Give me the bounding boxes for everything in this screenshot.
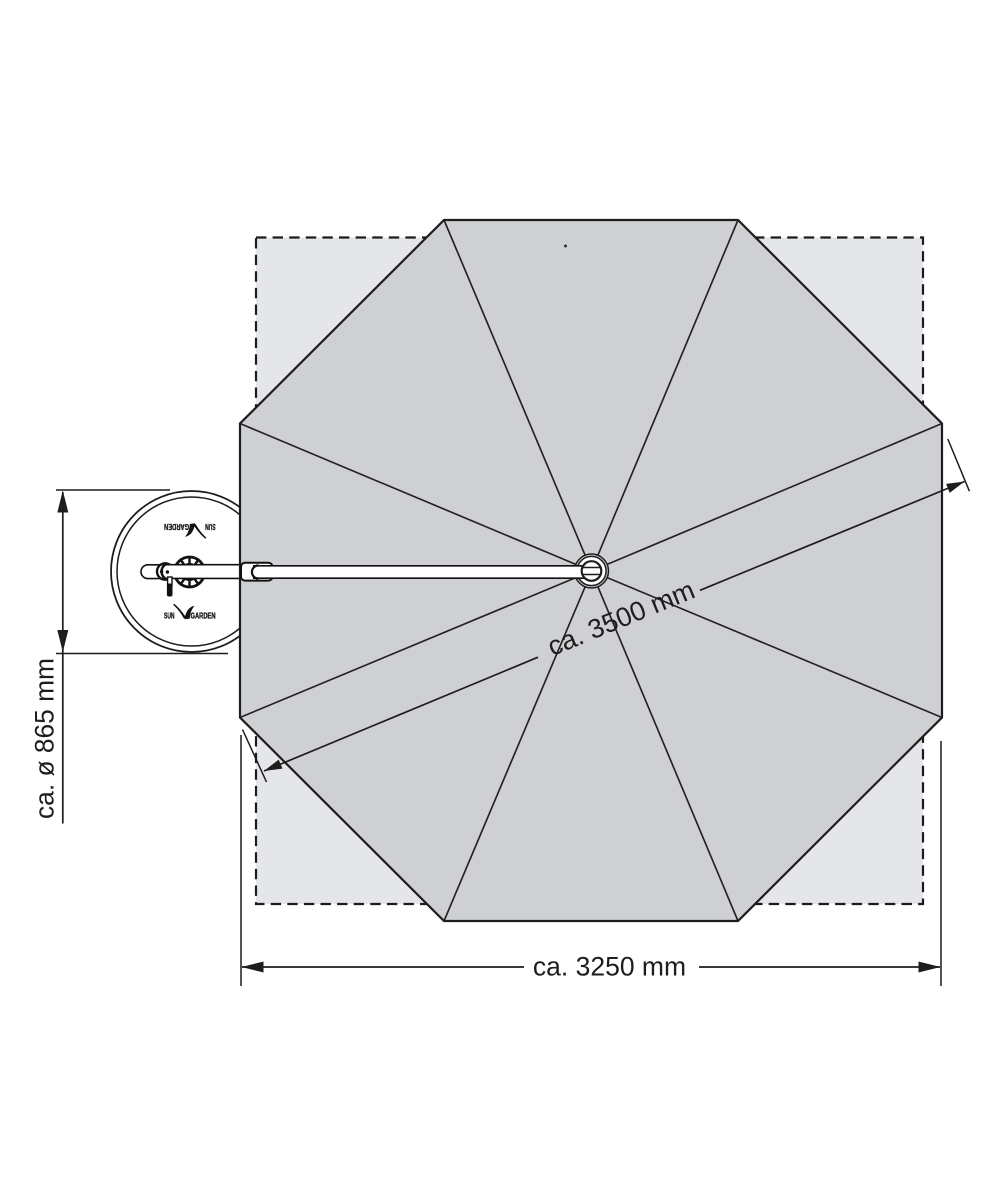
svg-text:ca. 3250 mm: ca. 3250 mm: [533, 952, 686, 982]
svg-text:GARDEN: GARDEN: [191, 612, 216, 621]
svg-text:GARDEN: GARDEN: [164, 522, 189, 531]
svg-text:SUN: SUN: [205, 522, 216, 531]
svg-text:SUN: SUN: [164, 612, 175, 621]
svg-text:ca. ø 865 mm: ca. ø 865 mm: [30, 658, 60, 819]
